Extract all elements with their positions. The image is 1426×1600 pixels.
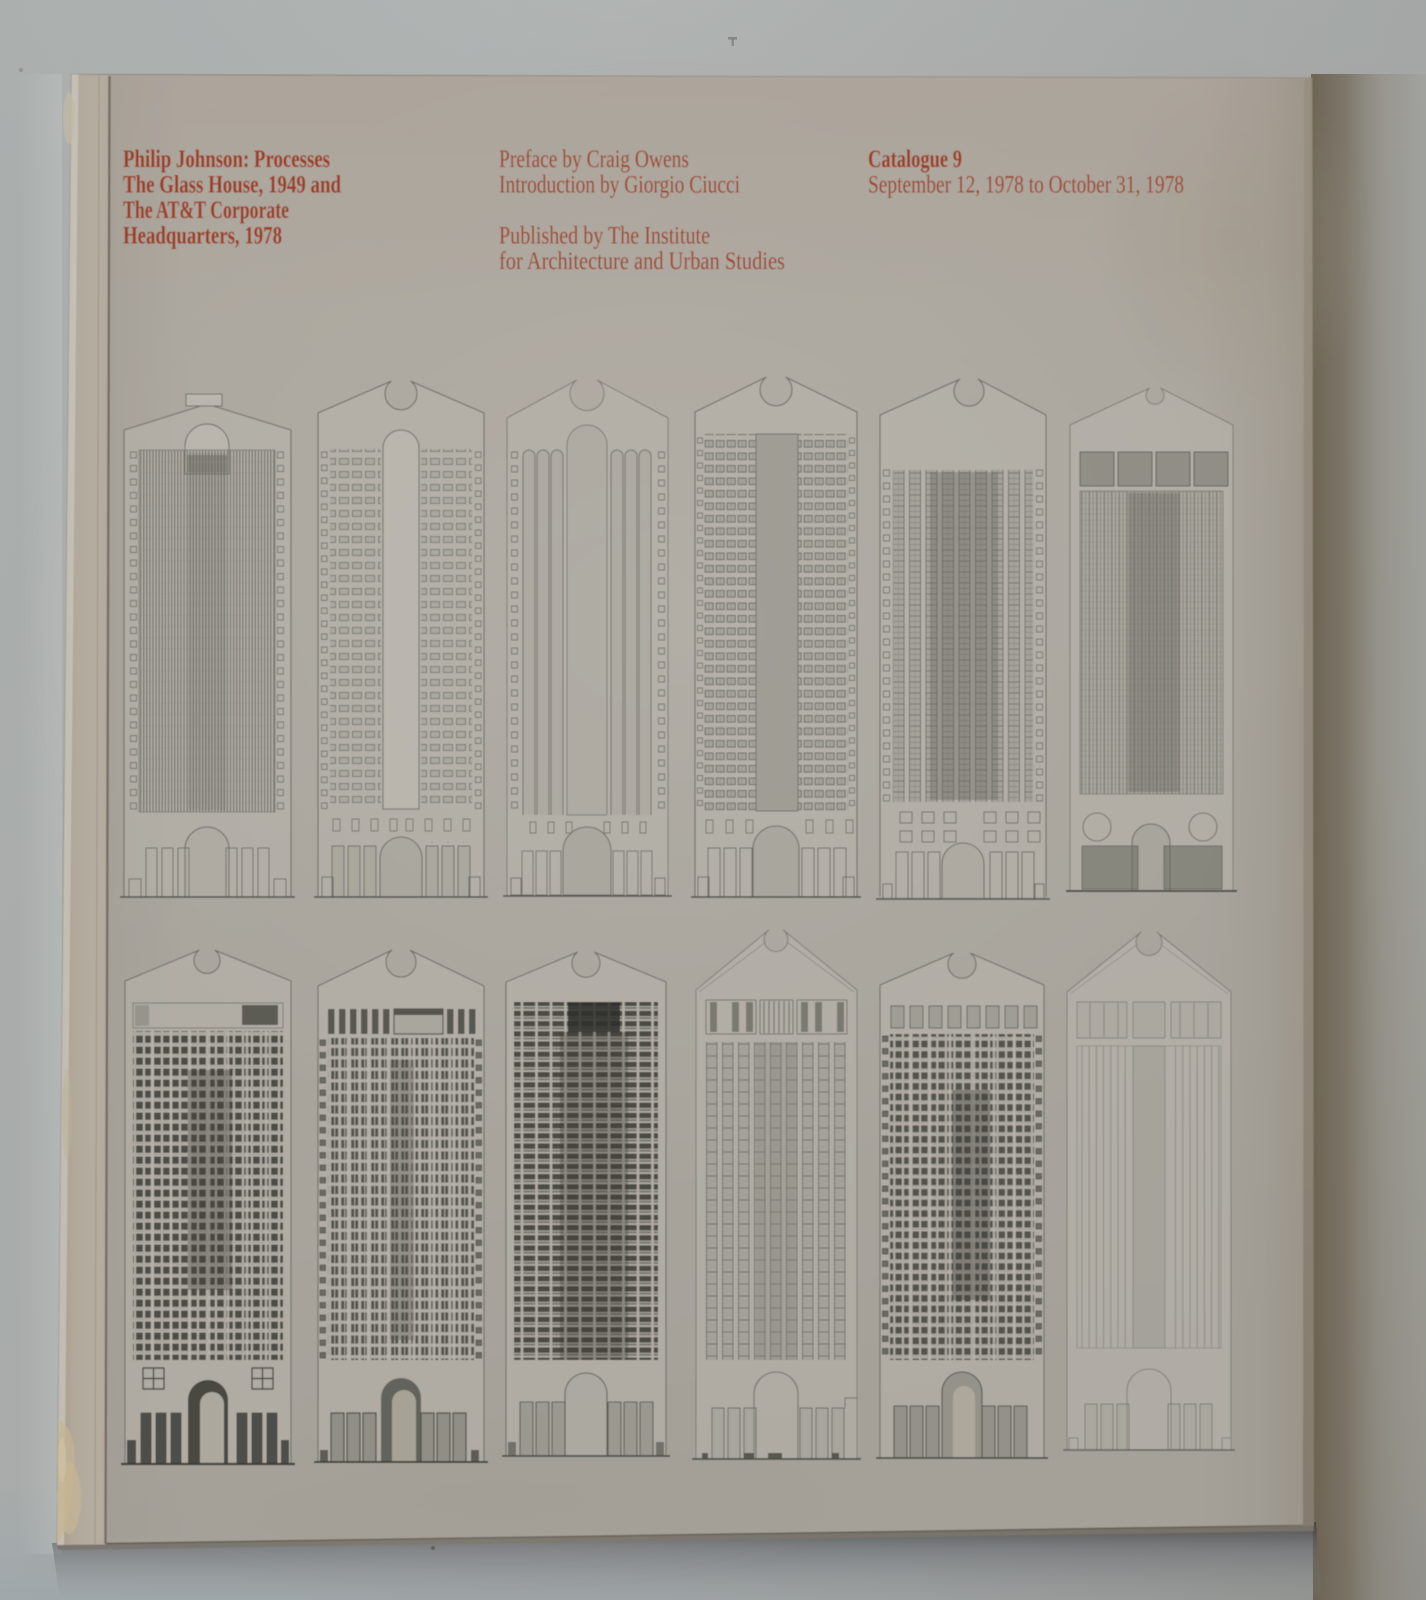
svg-text:Headquarters, 1978: Headquarters, 1978 (123, 222, 282, 249)
svg-text:The AT&T Corporate: The AT&T Corporate (123, 197, 289, 224)
svg-text:for Architecture and Urban Stu: for Architecture and Urban Studies (499, 248, 785, 275)
svg-text:Catalogue 9: Catalogue 9 (868, 146, 962, 173)
svg-text:Published by The Institute: Published by The Institute (499, 222, 710, 249)
svg-text:Introduction by Giorgio Ciucci: Introduction by Giorgio Ciucci (499, 172, 740, 199)
svg-text:September 12, 1978 to October: September 12, 1978 to October 31, 1978 (868, 172, 1184, 199)
svg-text:Preface by Craig Owens: Preface by Craig Owens (499, 146, 689, 173)
svg-text:Philip Johnson: Processes: Philip Johnson: Processes (123, 146, 330, 173)
svg-text:The Glass House, 1949 and: The Glass House, 1949 and (123, 172, 341, 199)
